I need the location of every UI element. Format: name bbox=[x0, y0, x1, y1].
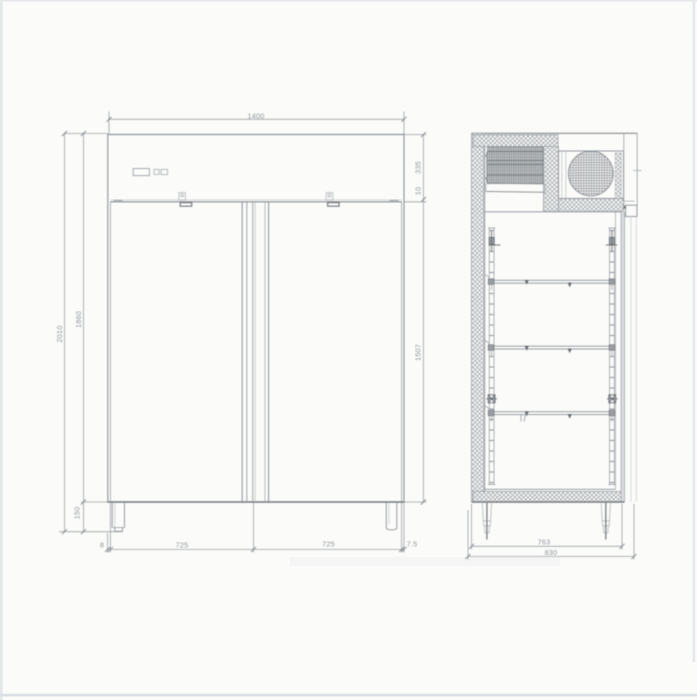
svg-text:7.5: 7.5 bbox=[407, 539, 418, 548]
svg-text:725: 725 bbox=[322, 539, 335, 548]
svg-text:2010: 2010 bbox=[55, 325, 64, 342]
svg-text:335: 335 bbox=[414, 161, 423, 174]
svg-text:150: 150 bbox=[73, 507, 82, 520]
svg-text:1400: 1400 bbox=[247, 111, 264, 120]
svg-text:1860: 1860 bbox=[74, 311, 83, 328]
svg-text:830: 830 bbox=[545, 548, 558, 557]
svg-text:8: 8 bbox=[100, 540, 104, 549]
svg-text:10: 10 bbox=[414, 187, 423, 196]
svg-text:1507: 1507 bbox=[414, 344, 423, 361]
svg-text:725: 725 bbox=[176, 540, 189, 549]
svg-text:763: 763 bbox=[538, 537, 551, 546]
